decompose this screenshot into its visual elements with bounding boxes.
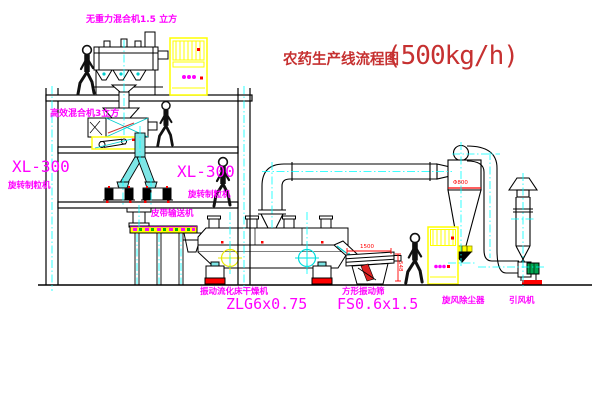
label-second-floor-mixer: 高效混合机3立方 [50, 110, 119, 119]
person-4 [406, 234, 422, 283]
label-sieve-model: FS0.6x1.5 [337, 297, 418, 312]
induced-draft-fan [518, 262, 542, 285]
dimension-cyclone-diameter: Φ800 [453, 181, 468, 187]
diagram-title-capacity: (500kg/h) [386, 43, 518, 69]
dimension-sieve-length: 1500 [360, 245, 374, 251]
dimension-sieve-height: 548 [397, 261, 403, 272]
top-mixer [92, 32, 168, 118]
label-granulator-right-name: 旋转制粒机 [188, 191, 231, 200]
label-granulator-left-name: 旋转制粒机 [8, 182, 51, 191]
label-cyclone: 旋风除尘器 [442, 297, 485, 306]
label-dryer-model: ZLG6x0.75 [226, 297, 307, 312]
granulator-right [141, 182, 173, 203]
diagram-title: 农药生产线流程图 [283, 53, 399, 68]
label-fan: 引风机 [509, 297, 535, 306]
control-cabinet-1 [170, 38, 207, 95]
label-belt-conveyor: 皮带输送机 [151, 210, 194, 219]
label-granulator-right-model: XL-300 [177, 164, 235, 180]
label-granulator-left-model: XL-300 [12, 159, 70, 175]
granulator-left [103, 182, 135, 203]
process-flow-diagram: 农药生产线流程图 (500kg/h) 无重力混合机1.5 立方 高效混合机3立方… [0, 0, 600, 403]
label-top-mixer: 无重力混合机1.5 立方 [86, 16, 177, 25]
person-2 [158, 102, 173, 147]
person-1 [78, 46, 94, 94]
control-cabinet-2 [428, 227, 458, 284]
